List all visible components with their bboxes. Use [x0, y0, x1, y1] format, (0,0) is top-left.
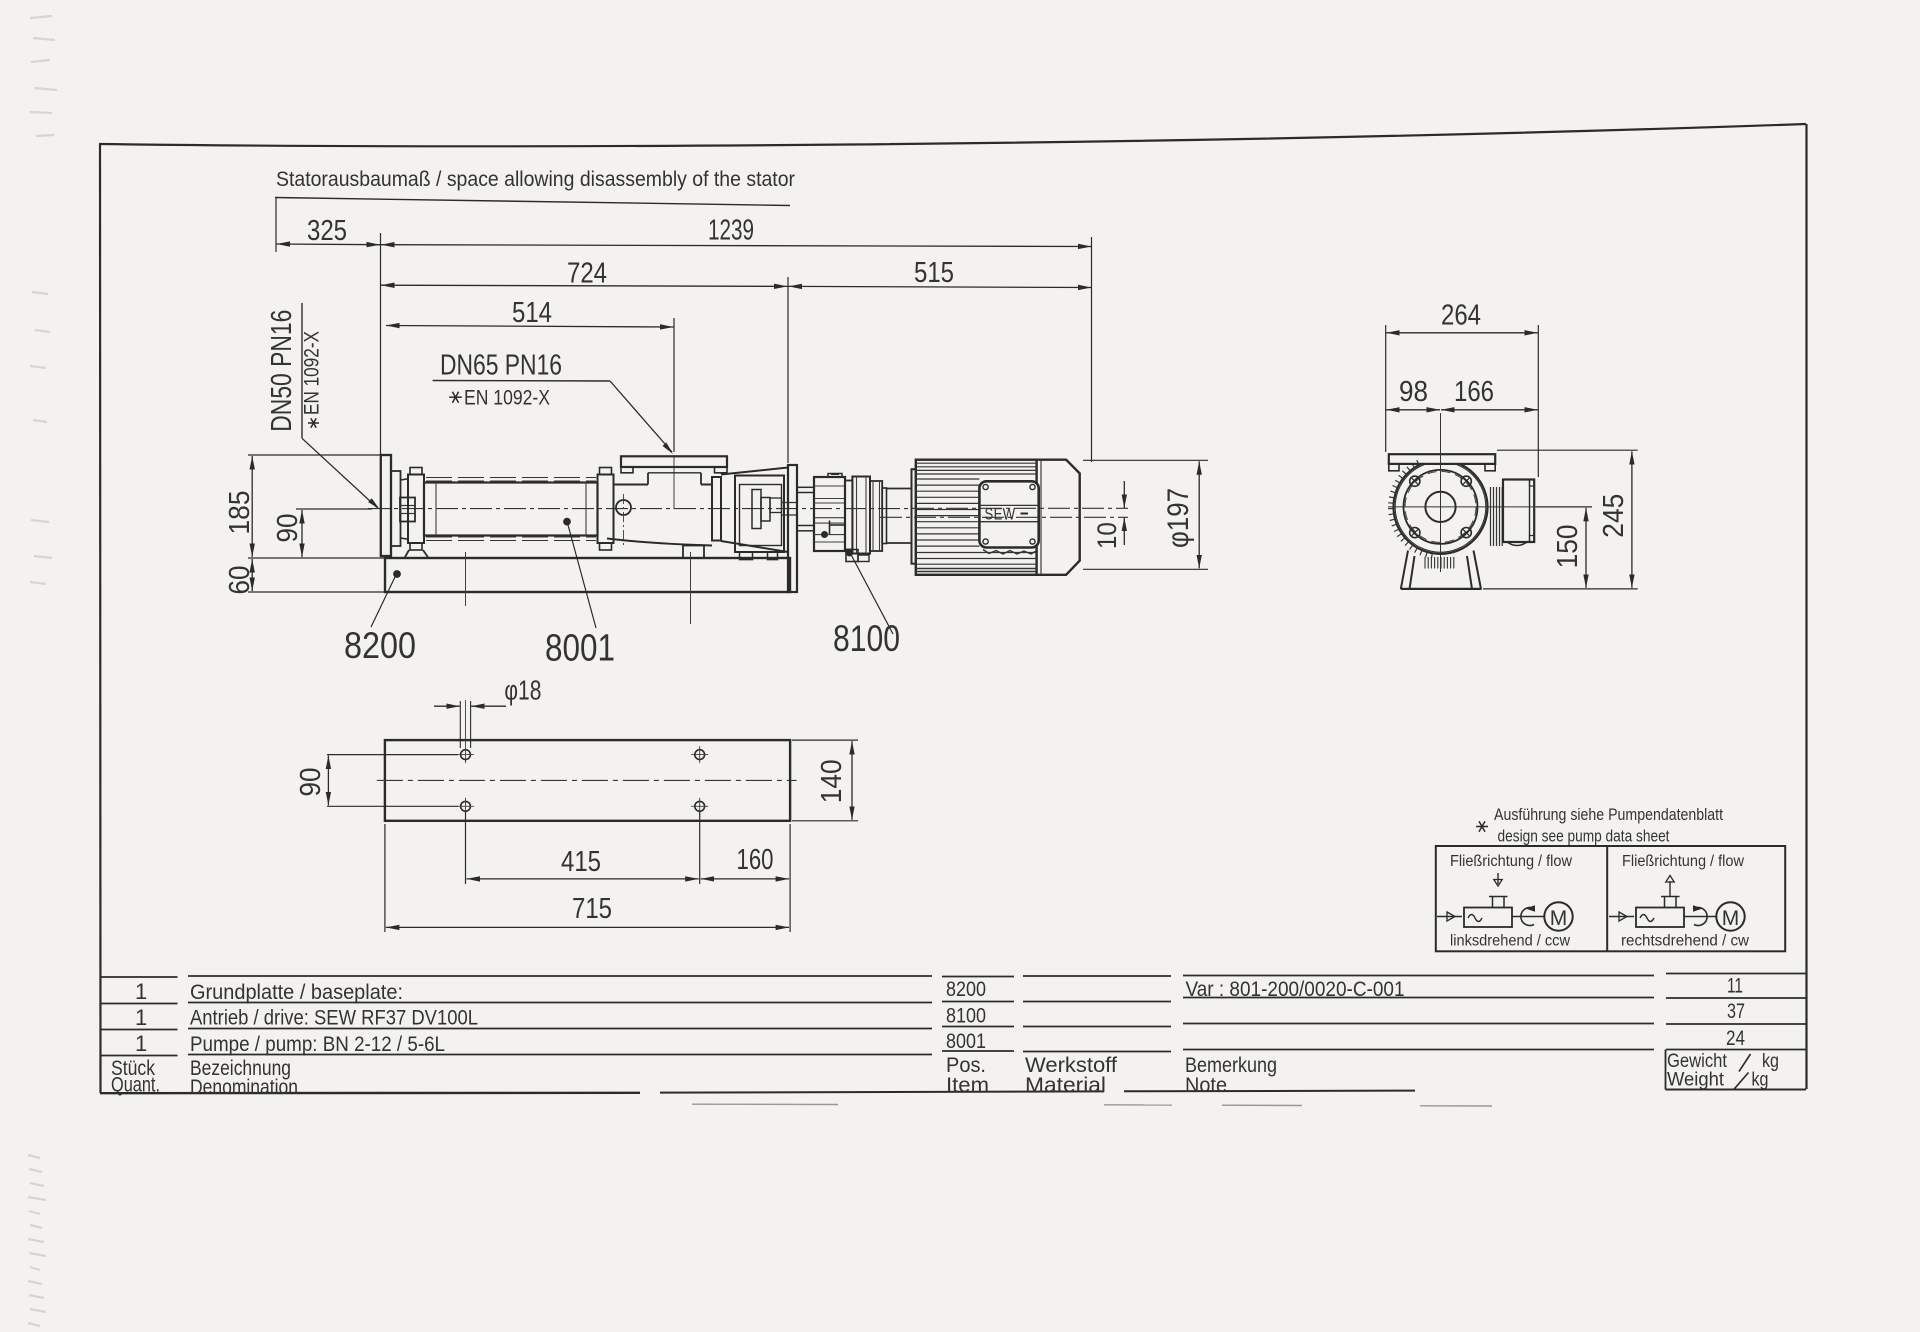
svg-text:1239: 1239	[708, 215, 754, 247]
svg-text:715: 715	[572, 893, 612, 925]
svg-text:166: 166	[1454, 376, 1494, 408]
svg-text:60: 60	[224, 566, 256, 595]
svg-text:Denomination: Denomination	[190, 1076, 298, 1099]
svg-text:Grundplatte / baseplate:: Grundplatte / baseplate:	[190, 981, 403, 1004]
svg-text:10: 10	[1092, 522, 1122, 549]
svg-text:Material: Material	[1025, 1074, 1106, 1097]
svg-text:724: 724	[567, 258, 607, 290]
svg-text:Item: Item	[946, 1074, 989, 1097]
svg-text:11: 11	[1727, 975, 1743, 998]
svg-text:EN 1092-X: EN 1092-X	[464, 387, 550, 410]
svg-text:24: 24	[1726, 1027, 1745, 1050]
svg-text:98: 98	[1399, 376, 1428, 408]
svg-text:M: M	[1722, 907, 1740, 930]
svg-text:8001: 8001	[545, 628, 615, 670]
svg-text:Fließrichtung / flow: Fließrichtung / flow	[1622, 853, 1745, 870]
svg-text:8200: 8200	[946, 978, 986, 1001]
svg-text:Fließrichtung / flow: Fließrichtung / flow	[1450, 853, 1573, 870]
svg-text:1: 1	[135, 1005, 147, 1030]
svg-text:515: 515	[914, 257, 954, 289]
svg-text:SEW: SEW	[985, 505, 1016, 524]
svg-text:325: 325	[307, 215, 347, 247]
svg-text:DN50 PN16: DN50 PN16	[266, 310, 298, 432]
svg-text:Quant.: Quant.	[111, 1074, 160, 1097]
svg-text:Note: Note	[1185, 1074, 1227, 1097]
svg-text:8100: 8100	[833, 618, 900, 659]
svg-text:φ197: φ197	[1162, 488, 1195, 548]
svg-text:150: 150	[1552, 524, 1584, 568]
svg-text:design see pump data sheet: design see pump data sheet	[1498, 827, 1670, 846]
svg-text:DN65 PN16: DN65 PN16	[440, 350, 562, 382]
svg-text:Statorausbaumaß / space allowi: Statorausbaumaß / space allowing disasse…	[276, 168, 795, 191]
svg-text:160: 160	[737, 844, 774, 876]
svg-text:245: 245	[1598, 494, 1630, 538]
svg-text:1: 1	[135, 1031, 147, 1056]
svg-text:264: 264	[1441, 300, 1481, 332]
svg-text:Pumpe / pump: BN 2-12 / 5-6L: Pumpe / pump: BN 2-12 / 5-6L	[190, 1033, 445, 1056]
svg-text:kg: kg	[1752, 1070, 1769, 1091]
svg-text:EN 1092-X: EN 1092-X	[301, 331, 324, 415]
svg-text:rechtsdrehend / cw: rechtsdrehend / cw	[1621, 933, 1750, 950]
svg-text:90: 90	[272, 514, 304, 543]
svg-text:φ18: φ18	[504, 675, 541, 706]
svg-text:415: 415	[561, 846, 601, 878]
svg-text:140: 140	[816, 759, 848, 803]
svg-text:90: 90	[295, 768, 327, 797]
svg-text:Weight: Weight	[1667, 1070, 1725, 1091]
svg-text:linksdrehend / ccw: linksdrehend / ccw	[1450, 933, 1571, 950]
svg-text:Var : 801-200/0020-C-001: Var : 801-200/0020-C-001	[1186, 978, 1405, 1001]
svg-text:1: 1	[135, 979, 147, 1004]
svg-text:514: 514	[512, 297, 552, 329]
svg-text:8001: 8001	[946, 1030, 986, 1053]
svg-text:8200: 8200	[344, 625, 416, 666]
svg-text:8100: 8100	[946, 1005, 986, 1028]
svg-text:Antrieb / drive: SEW RF37 DV10: Antrieb / drive: SEW RF37 DV100L	[190, 1007, 478, 1030]
svg-text:M: M	[1550, 907, 1568, 930]
svg-text:185: 185	[224, 491, 256, 535]
svg-text:37: 37	[1727, 1000, 1745, 1023]
svg-text:Ausführung siehe Pumpendatenbl: Ausführung siehe Pumpendatenblatt	[1494, 805, 1723, 824]
